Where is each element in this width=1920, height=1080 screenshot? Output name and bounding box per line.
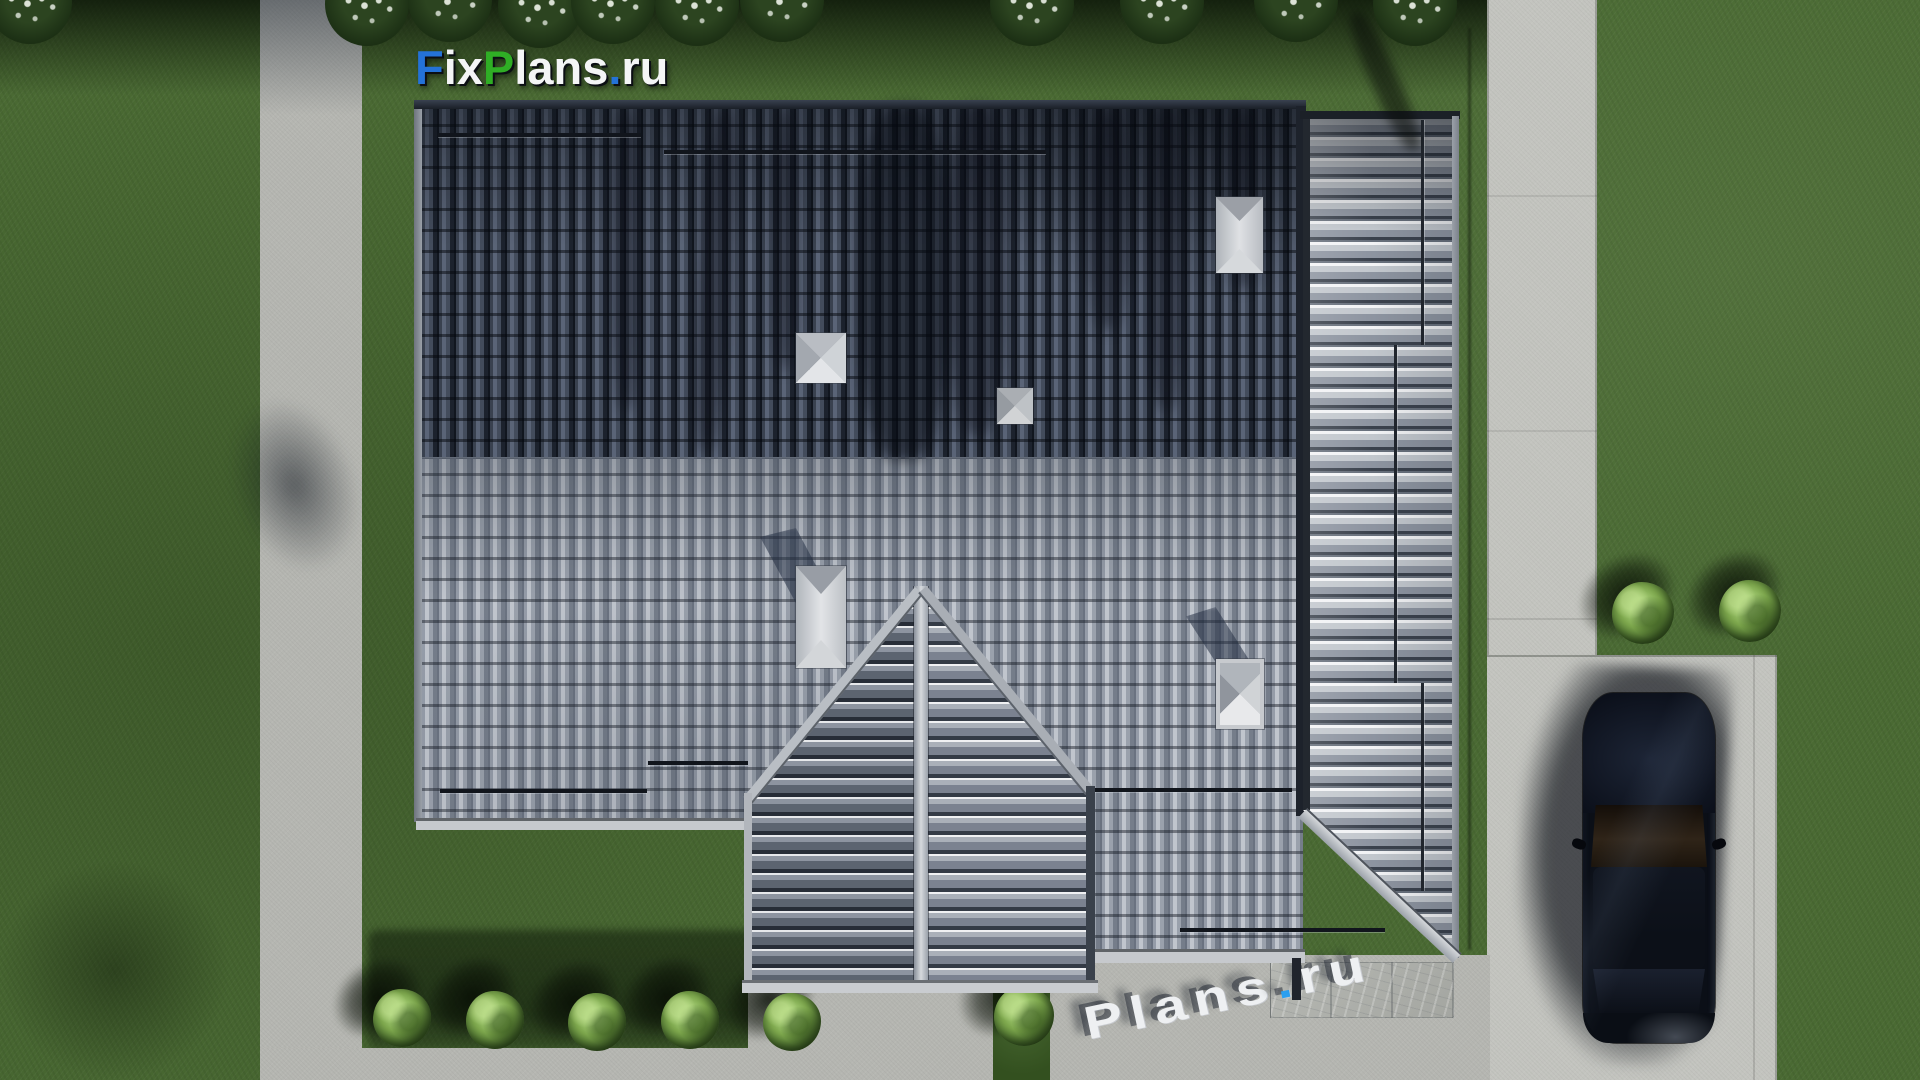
chimney-cap-top-face <box>1216 197 1263 221</box>
chimney-pyramid-cap <box>796 333 846 383</box>
shrub <box>373 989 431 1047</box>
shrub <box>994 986 1054 1046</box>
wing-seam <box>1394 345 1397 683</box>
wing-seam <box>1421 120 1424 345</box>
lawn-corner-shadow <box>0 860 230 1080</box>
shrub <box>466 991 524 1049</box>
snow-guard-rail <box>438 133 641 137</box>
roof-shadow-streak <box>612 110 640 410</box>
logo-fix-ix: ix <box>444 41 483 94</box>
gable-ridge <box>914 586 928 986</box>
roof-shadow-streak <box>1148 110 1184 410</box>
snow-guard-rail <box>1180 928 1385 932</box>
logo-fix-f: F <box>415 41 444 94</box>
shrub <box>568 993 626 1051</box>
hedge-line <box>1468 28 1471 950</box>
logo-tld: ru <box>621 41 668 94</box>
wing-seam <box>1421 683 1424 891</box>
roof-window <box>1216 659 1264 729</box>
car-body-shine <box>1583 693 1715 1043</box>
aerial-house-render: Plans.ru <box>0 0 1920 1080</box>
roof-left-fascia <box>414 106 422 822</box>
car <box>1583 693 1715 1043</box>
chimney-hip-cap <box>1216 197 1263 273</box>
wing-top-fascia <box>1300 111 1460 119</box>
gable-left-slope <box>748 588 922 986</box>
snow-guard-rail <box>648 761 748 765</box>
path-right <box>1487 0 1597 660</box>
downspout <box>1292 958 1301 1000</box>
eave-gutter-right <box>1086 949 1305 963</box>
shrub <box>763 993 821 1051</box>
snow-guard-rail <box>440 789 647 793</box>
top-logo: FixPlans.ru <box>415 44 668 91</box>
snow-guard-rail <box>664 150 1046 154</box>
wing-left-edge <box>1303 116 1310 810</box>
gable-barge-right <box>1086 786 1095 984</box>
wing-right-fascia <box>1452 116 1459 958</box>
roof-shadow-streak <box>1088 110 1128 330</box>
roof-window-glass <box>1220 663 1260 725</box>
roof-top-fascia <box>414 100 1306 109</box>
snow-guard-rail <box>1090 788 1292 792</box>
driveway-joint <box>1753 655 1755 1080</box>
eave-gutter-left <box>416 818 756 830</box>
chimney-cap-bottom-face <box>1216 249 1263 273</box>
sidewalk-tree-shadow <box>205 379 384 591</box>
roof-shadow-streak <box>858 105 950 460</box>
shrub <box>1612 582 1674 644</box>
shrub <box>661 991 719 1049</box>
path-joint <box>1487 430 1597 432</box>
logo-dot: . <box>608 41 621 94</box>
logo-plans-p: P <box>483 41 514 94</box>
roof-shadow-streak <box>772 110 798 370</box>
chimney-pyramid-small <box>997 388 1033 424</box>
gable-barge-left <box>744 793 752 985</box>
gable-right-slope <box>922 588 1094 986</box>
roof-shadow-streak <box>948 105 1006 435</box>
shrub <box>1719 580 1781 642</box>
gable-eave <box>742 980 1098 993</box>
path-joint <box>1487 195 1597 197</box>
logo-plans-rest: lans <box>514 41 608 94</box>
sidewalk-bottom <box>260 1048 760 1080</box>
sidewalk-left <box>260 0 362 1052</box>
gable-wing <box>742 584 1098 992</box>
